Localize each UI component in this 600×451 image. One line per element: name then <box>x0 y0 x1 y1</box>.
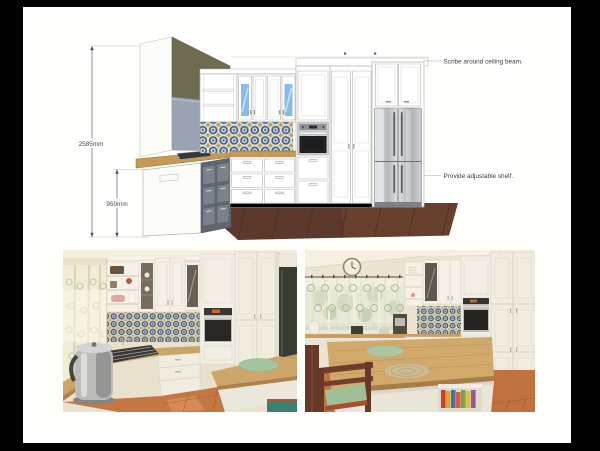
wall-oven <box>298 122 329 155</box>
peninsula-bench <box>136 150 233 236</box>
fridge-cavity <box>372 62 424 207</box>
kitchen-elevation-drawing: 2585mm 950mm Scribe around ceiling beam.… <box>60 30 560 248</box>
annotation-adjustable-shelf: Provide adjustable shelf. <box>424 173 513 180</box>
end-panel <box>143 163 201 236</box>
photo-kitchen-corner <box>63 250 297 412</box>
annotation-text-ceiling-beam: Scribe around ceiling beam. <box>444 59 523 66</box>
dimension-bench-height: 950mm <box>104 170 145 238</box>
dimension-overall-height: 2585mm <box>76 46 150 237</box>
upper-cabinets <box>237 74 296 122</box>
oven-tower <box>296 66 330 204</box>
annotation-ceiling-beam: Scribe around ceiling beam. <box>424 59 523 66</box>
dimension-label-overall: 2585mm <box>79 141 104 148</box>
open-shelf-unit <box>200 74 237 122</box>
front-elevation <box>200 53 428 208</box>
annotation-text-adjustable-shelf: Provide adjustable shelf. <box>444 173 514 180</box>
tile-splashback <box>200 122 293 153</box>
french-door-fridge <box>375 108 422 207</box>
tall-pantry <box>330 66 372 204</box>
base-drawers <box>230 157 296 204</box>
timber-floor <box>212 203 458 240</box>
document-page-view: 2585mm 950mm Scribe around ceiling beam.… <box>0 0 600 451</box>
dimension-label-bench: 950mm <box>106 201 127 208</box>
photo-kitchen-island <box>305 250 535 412</box>
